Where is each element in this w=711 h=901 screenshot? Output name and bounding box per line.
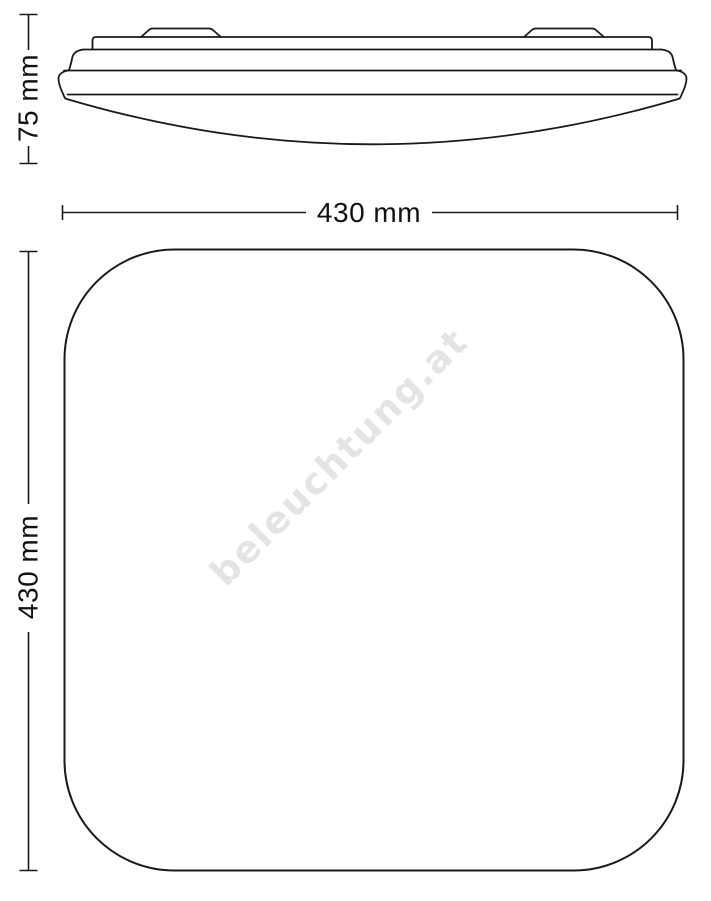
right-mounting-clip	[524, 29, 604, 38]
front-height-label: 430 mm	[13, 515, 44, 619]
mounting-plate	[93, 37, 653, 50]
side-height-label: 75 mm	[13, 54, 44, 142]
lamp-face-outline	[65, 250, 684, 871]
diffuser-curve	[66, 99, 680, 145]
width-label: 430 mm	[317, 197, 421, 228]
side-profile-drawing	[59, 29, 687, 145]
dimension-diagram: beleuchtung.at 75 mm 430 mm 430 mm	[0, 0, 711, 901]
diagram-canvas: beleuchtung.at 75 mm 430 mm 430 mm	[0, 0, 711, 901]
left-mounting-clip	[141, 29, 221, 38]
body-side-right	[662, 50, 687, 99]
body-side-left	[59, 50, 84, 99]
